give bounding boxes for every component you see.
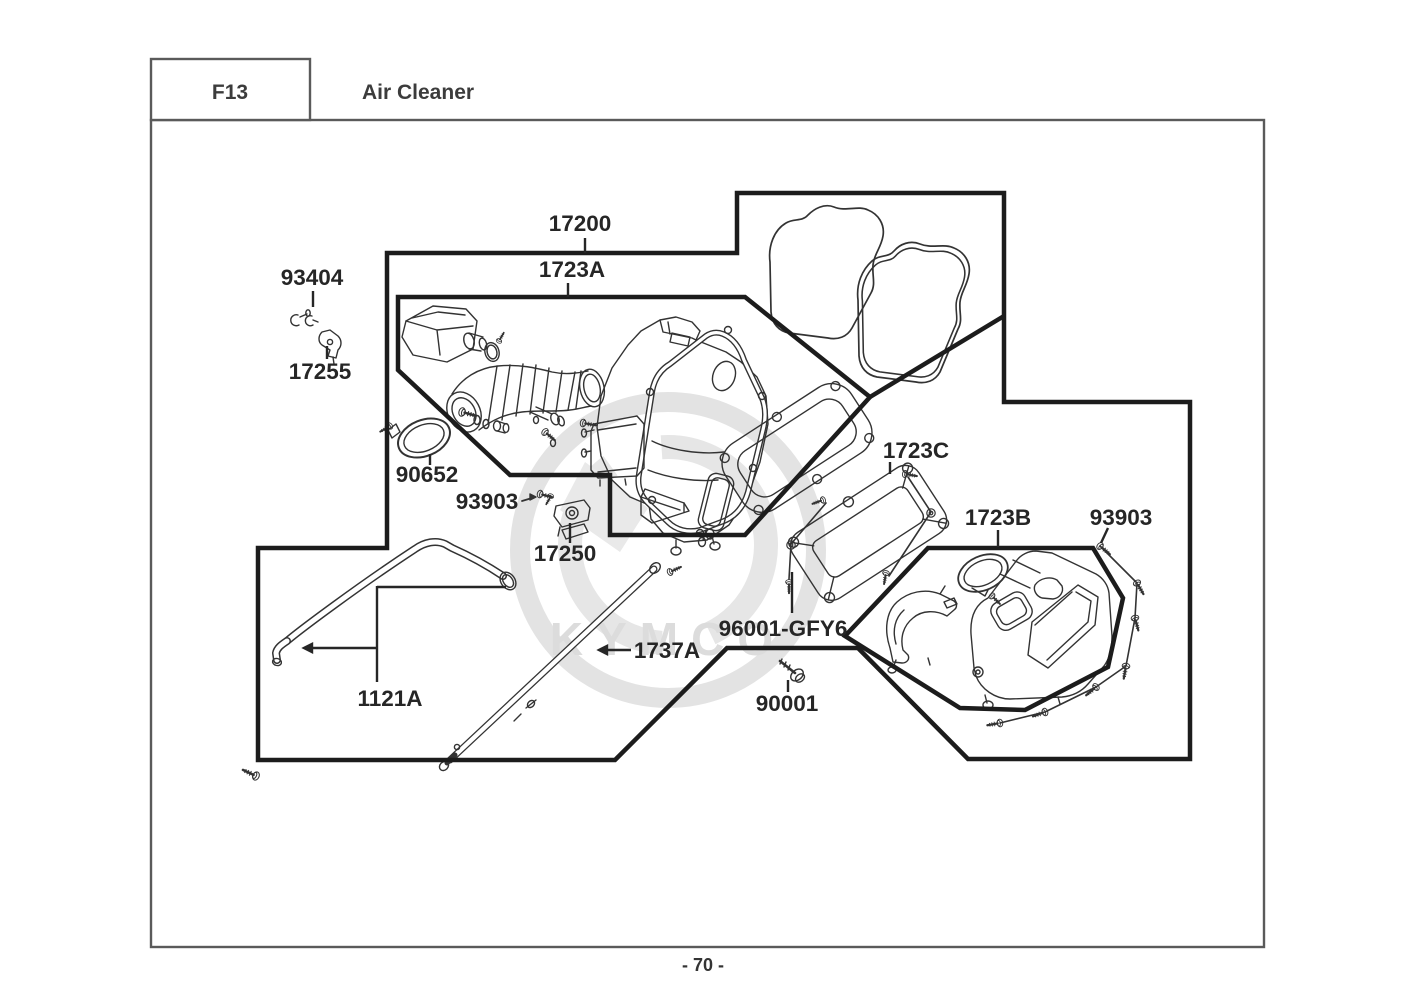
part-label-1737A: 1737A <box>634 638 700 663</box>
part-label-17200: 17200 <box>549 211 612 236</box>
cover-elbow-duct-drawing <box>887 586 957 673</box>
part-label-1723B: 1723B <box>965 505 1031 530</box>
part-label-17255: 17255 <box>289 359 352 384</box>
clip-93404-drawing <box>291 310 318 326</box>
part-label-1121A: 1121A <box>357 686 422 711</box>
part-label-90652: 90652 <box>396 462 459 487</box>
page-frame: F13 Air Cleaner <box>151 59 1264 947</box>
bolt-90001-drawing <box>780 659 806 684</box>
hose-clamp-90652-drawing <box>379 411 456 465</box>
part-label-1723C: 1723C <box>883 438 949 463</box>
manual-page: KYMCO F13 Air Cleaner <box>0 0 1415 1000</box>
boundary-connector <box>870 316 1004 397</box>
drain-tube-drawing <box>438 561 683 773</box>
part-label-96001-GFY6: 96001-GFY6 <box>719 616 848 641</box>
part-label-93903-right: 93903 <box>1090 505 1153 530</box>
part-label-1723A: 1723A <box>539 257 605 282</box>
air-cleaner-cover-drawing <box>971 551 1112 709</box>
section-title: Air Cleaner <box>362 81 474 104</box>
intake-snorkel-drawing <box>402 306 506 363</box>
corner-screw-drawing <box>241 766 260 781</box>
section-code: F13 <box>212 81 248 104</box>
part-label-90001: 90001 <box>756 691 819 716</box>
page-number: - 70 - <box>682 955 724 975</box>
cover-screw-chain-drawing <box>987 541 1147 729</box>
part-label-93404: 93404 <box>281 265 344 290</box>
air-cleaner-diagram: KYMCO F13 Air Cleaner <box>0 0 1415 1000</box>
part-label-93903-left: 93903 <box>456 489 519 514</box>
part-label-17250: 17250 <box>534 541 597 566</box>
